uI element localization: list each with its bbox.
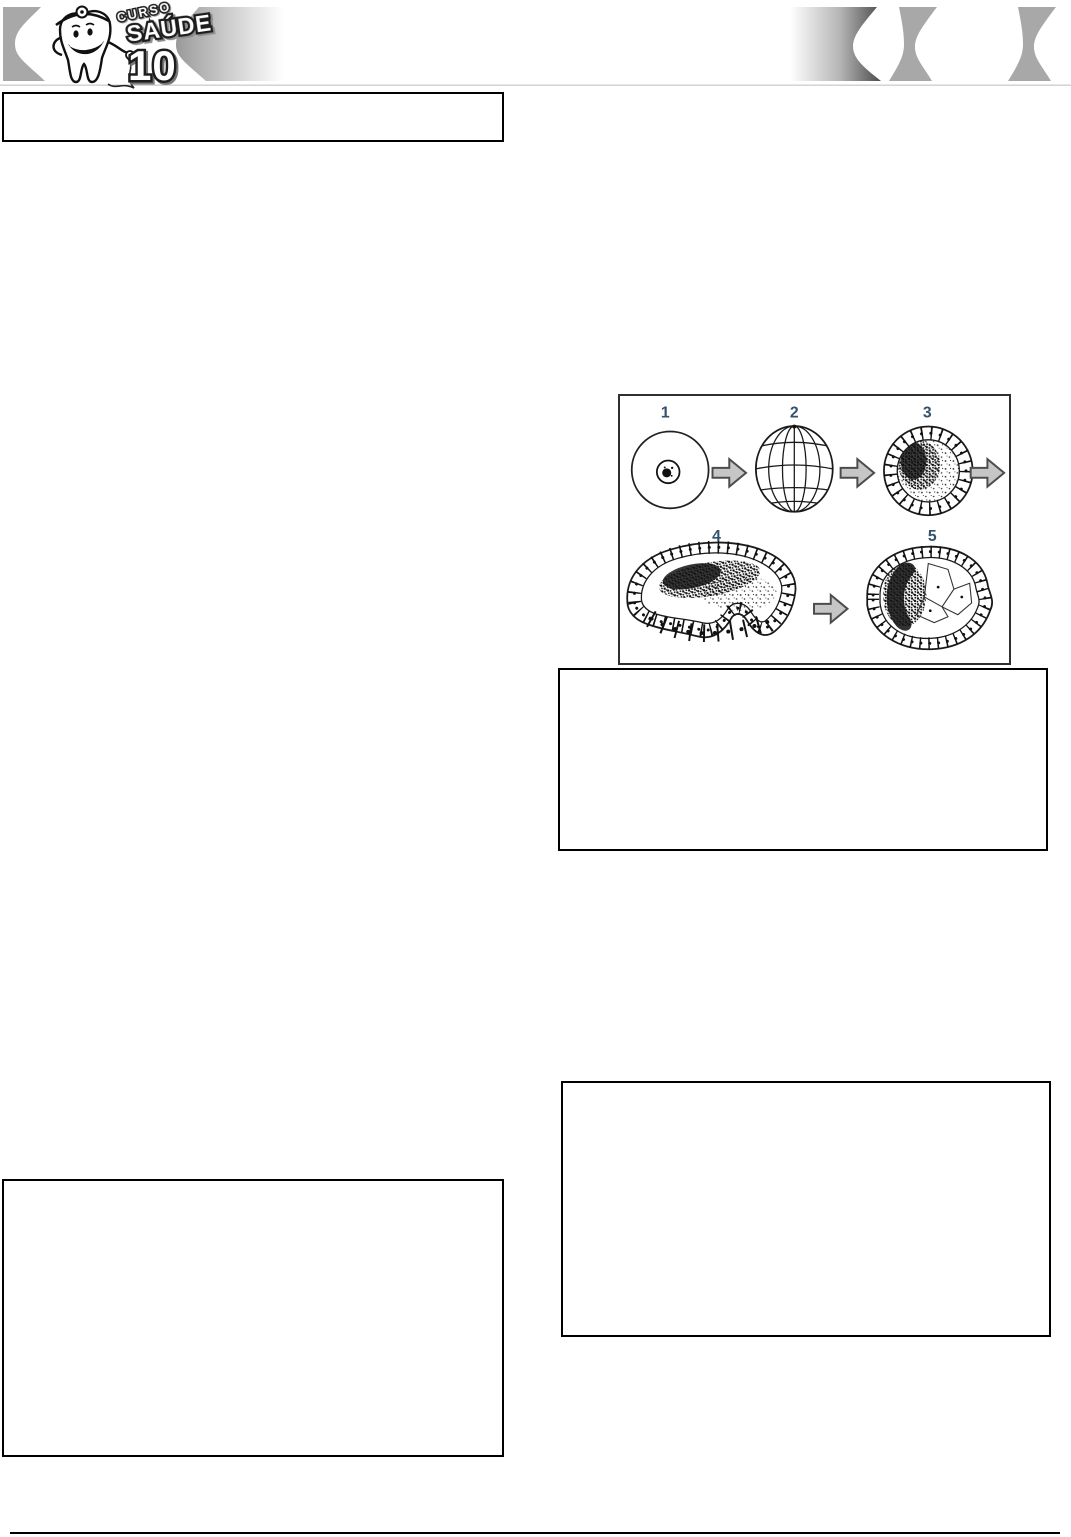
stage-3-blastula: [884, 427, 973, 516]
page-bottom-rule: [10, 1532, 1060, 1534]
stage-1-zygote: [632, 431, 709, 508]
arrow-right-icon: [971, 459, 1004, 487]
stage-5-late-gastrula: [867, 547, 992, 650]
worksheet-page: CURSO SAÚDE 10: [0, 0, 1071, 1537]
arrow-right-icon: [713, 459, 746, 487]
question-box-below-figure: [558, 668, 1048, 851]
stage-label-5: 5: [928, 528, 937, 545]
embryo-development-figure: 1 2 3 4 5: [618, 394, 1011, 665]
header-banner: CURSO SAÚDE 10: [0, 0, 1071, 90]
question-box-bottom-left: [2, 1179, 504, 1457]
ribbon-wave-far-right-icon: [1008, 7, 1056, 81]
arrow-right-icon: [841, 459, 874, 487]
ribbon-gradient-right-icon: [790, 7, 881, 81]
stage-label-1: 1: [661, 405, 670, 422]
stage-label-2: 2: [790, 405, 799, 422]
stage-label-3: 3: [923, 405, 932, 422]
stage-2-morula: [756, 425, 833, 513]
arrow-right-icon: [814, 595, 847, 623]
question-box-right-lower: [561, 1081, 1051, 1337]
ribbon-wave-left-icon: [3, 7, 45, 81]
ribbon-wave-icon: [889, 7, 937, 81]
logo-text-10: 10: [128, 42, 177, 89]
stage-4-gastrula: [627, 542, 795, 637]
question-box-top-left: [2, 92, 504, 142]
